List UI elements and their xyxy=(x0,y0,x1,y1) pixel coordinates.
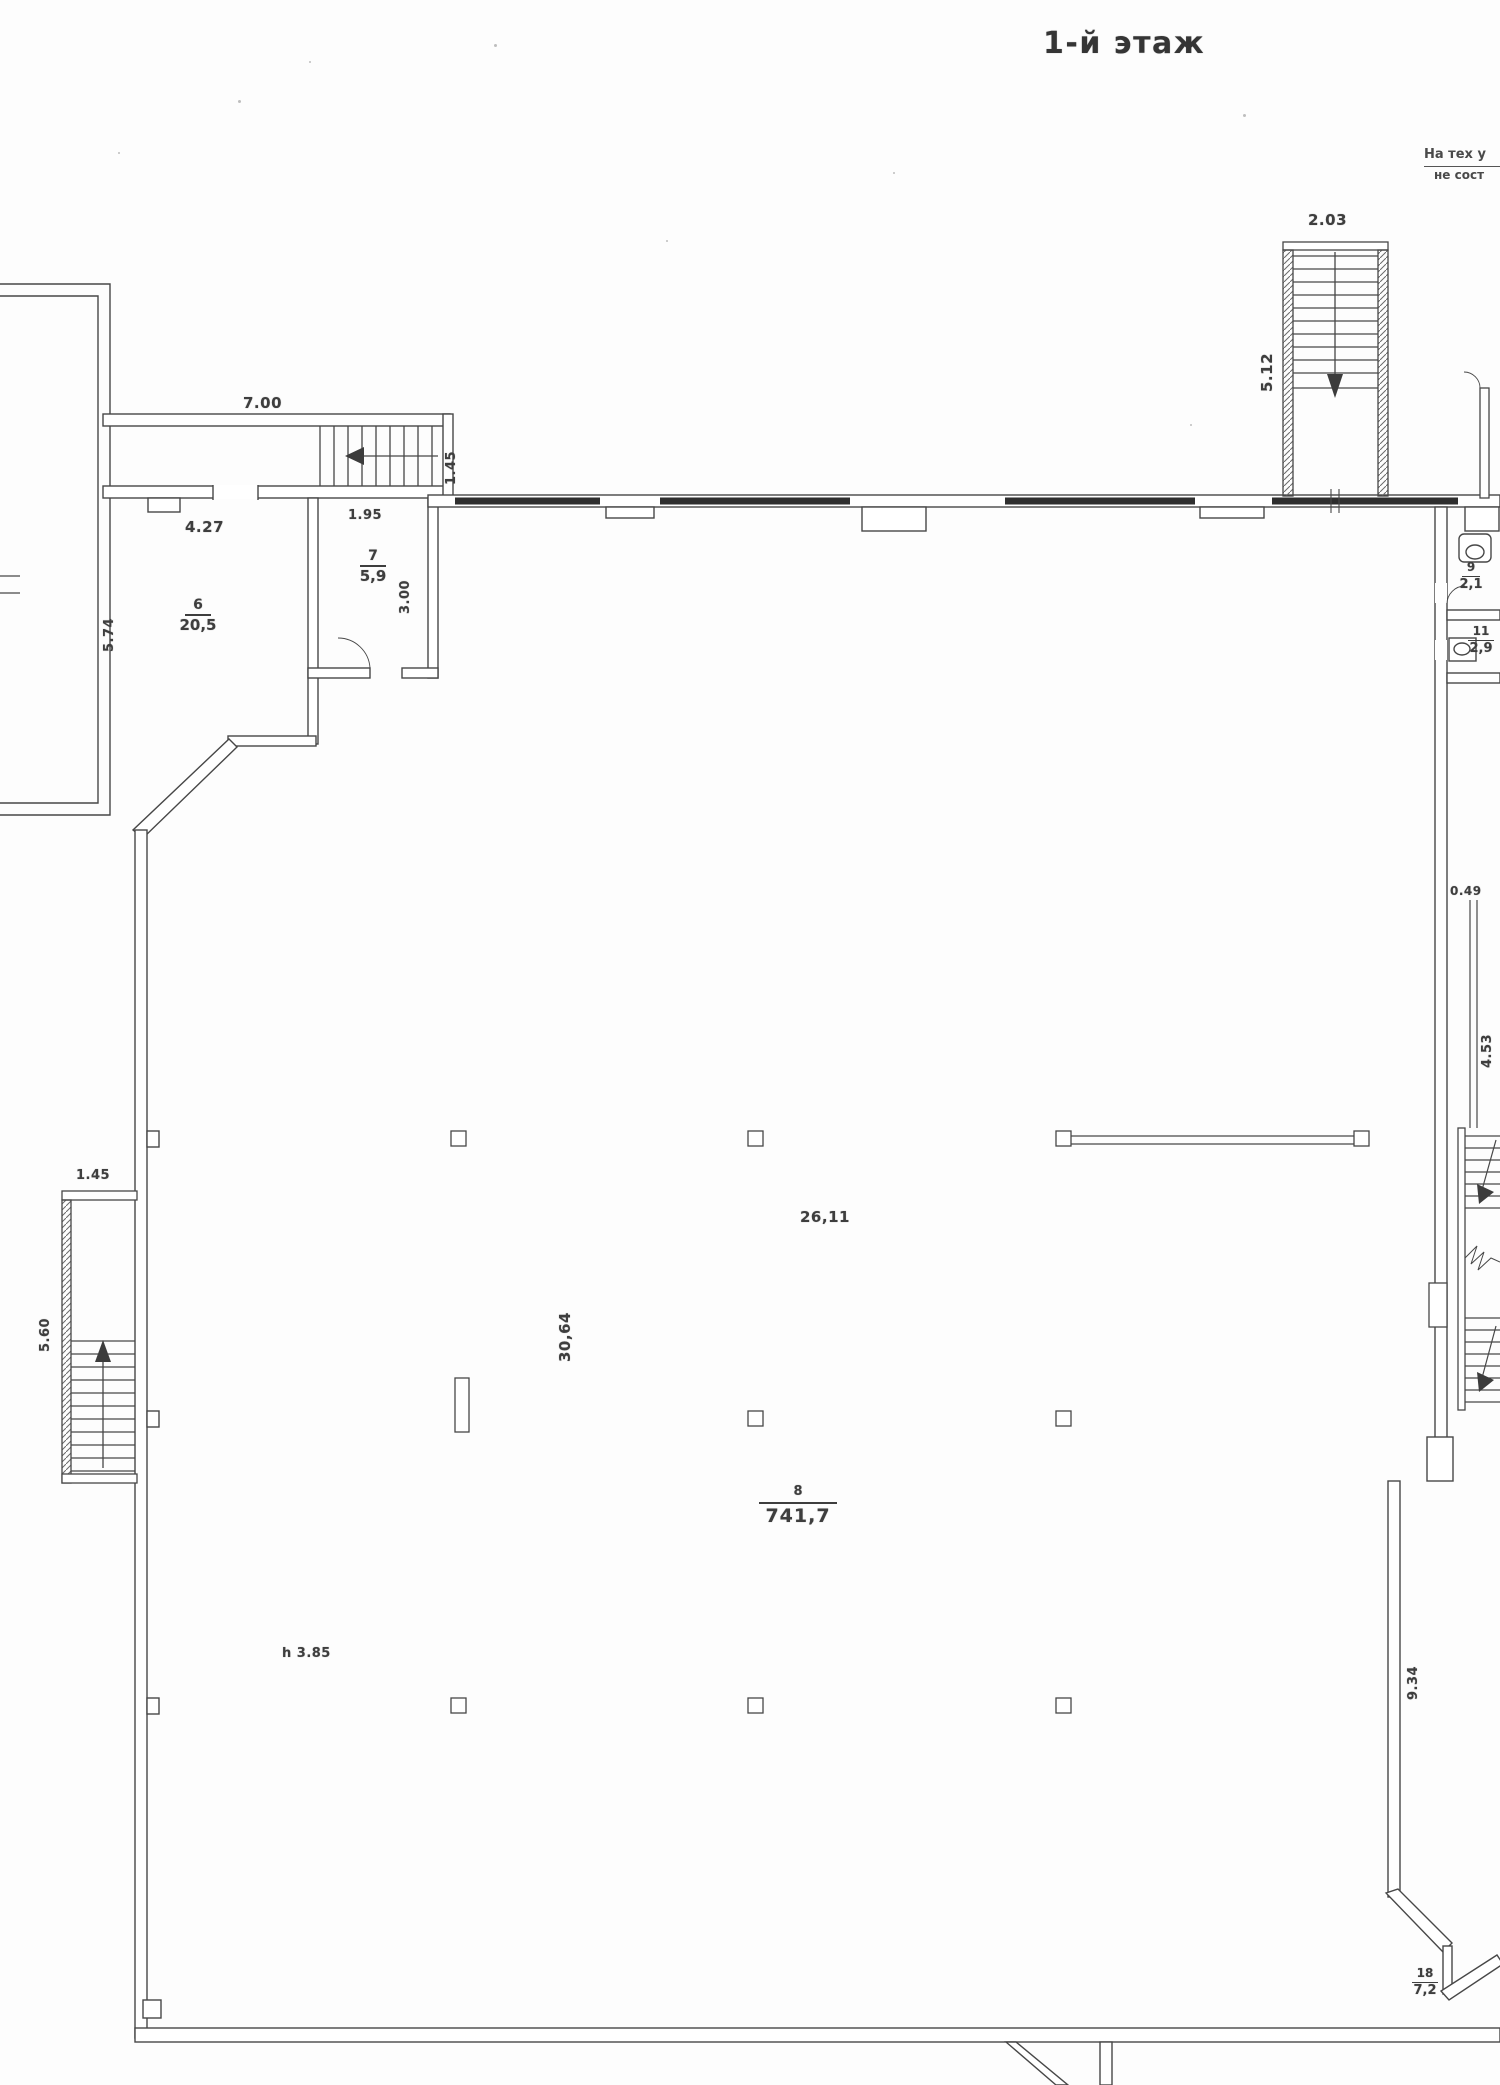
door-arc xyxy=(1464,372,1480,388)
registration-note: На тех у не сост xyxy=(1424,146,1500,184)
room6-area: 20,5 xyxy=(166,616,230,636)
dim-hall-width: 26,11 xyxy=(800,1208,850,1226)
wall-pilaster xyxy=(147,1131,159,1147)
scan-speck xyxy=(118,152,120,154)
note-line-2: не сост xyxy=(1424,167,1500,184)
scan-speck xyxy=(1243,114,1246,117)
corner-column xyxy=(143,2000,161,2018)
wall-pier xyxy=(862,507,926,531)
dim-left-stair-width: 1.45 xyxy=(76,1168,110,1183)
room11-number: 11 xyxy=(1468,625,1495,641)
dim-right-corridor: 4.53 xyxy=(1480,1034,1495,1068)
room18-area: 7,2 xyxy=(1396,1983,1454,2000)
stair-direction-arrow xyxy=(1327,374,1343,398)
right-edge-wall-stub xyxy=(1464,372,1489,498)
vestibule-walls xyxy=(103,414,453,512)
dim-hall-depth: 30,64 xyxy=(556,1312,574,1362)
floor-plan-scan: 1-й этаж На тех у не сост 2.03 5.12 7.00… xyxy=(0,0,1500,2085)
stair-arrow xyxy=(1477,1372,1494,1392)
window-band xyxy=(1272,498,1458,505)
dim-entry-wall: 7.00 xyxy=(243,394,282,412)
scan-speck xyxy=(494,44,497,47)
hall-columns xyxy=(451,1131,1369,1713)
wall-pilaster xyxy=(147,1411,159,1427)
room18-number: 18 xyxy=(1412,1967,1439,1983)
duct-shaft xyxy=(1429,1283,1447,1327)
room7-tag: 7 5,9 xyxy=(345,545,401,587)
hall-north-wall xyxy=(428,489,1500,531)
upper-left-stair xyxy=(320,426,438,486)
column-block xyxy=(1427,1437,1453,1481)
left-building-block xyxy=(0,284,110,815)
room7-area: 5,9 xyxy=(345,567,401,587)
scan-speck xyxy=(309,61,311,63)
note-line-1: На тех у xyxy=(1424,146,1500,167)
window-band xyxy=(660,498,850,505)
left-stair xyxy=(62,1191,137,1483)
stair-arrow xyxy=(1477,1184,1494,1204)
room7-door-arc xyxy=(338,638,370,668)
scan-speck xyxy=(238,100,241,103)
room7-number: 7 xyxy=(360,548,386,567)
beam-over-opening xyxy=(1071,1136,1354,1144)
dim-room7-width: 1.95 xyxy=(348,508,382,523)
scan-speck xyxy=(1190,424,1192,426)
room8-area: 741,7 xyxy=(738,1504,858,1529)
dim-room6-depth: 5.74 xyxy=(102,618,117,652)
window-band xyxy=(455,498,600,505)
dim-room6-width: 4.27 xyxy=(185,518,224,536)
dim-entry-stair-width: 1.45 xyxy=(444,451,459,485)
room11-tag: 11 2,9 xyxy=(1460,620,1500,658)
lower-right-walls xyxy=(1386,1437,1500,2000)
room8-tag: 8 741,7 xyxy=(738,1480,858,1529)
room9-number: 9 xyxy=(1462,561,1480,577)
room9-area: 2,1 xyxy=(1450,577,1492,594)
slot-column xyxy=(455,1378,469,1432)
dim-right-room-depth: 9.34 xyxy=(1406,1666,1421,1700)
dim-niche: 0.49 xyxy=(1450,884,1482,898)
room6-number: 6 xyxy=(185,597,211,616)
page-title: 1-й этаж xyxy=(1043,26,1205,61)
ceiling-height-label: h 3.85 xyxy=(282,1646,331,1661)
stair-direction-arrow xyxy=(95,1340,111,1362)
room8-number: 8 xyxy=(759,1485,836,1504)
window-band xyxy=(1005,498,1195,505)
scan-speck xyxy=(893,172,895,174)
hall-envelope xyxy=(135,830,1500,2085)
room6-tag: 6 20,5 xyxy=(166,594,230,636)
room11-area: 2,9 xyxy=(1460,641,1500,658)
room9-tag: 9 2,1 xyxy=(1450,556,1492,594)
dim-top-stair-width: 2.03 xyxy=(1308,211,1347,229)
dim-top-stair-length: 5.12 xyxy=(1258,353,1276,392)
wall-pilaster xyxy=(147,1698,159,1714)
room18-tag: 18 7,2 xyxy=(1396,1962,1454,2000)
floorplan-drawing xyxy=(0,0,1500,2085)
scan-speck xyxy=(666,240,668,242)
wall-pier xyxy=(606,507,654,518)
wall-pier xyxy=(1200,507,1264,518)
wall-pier xyxy=(1465,507,1499,531)
top-stair xyxy=(1283,242,1388,496)
dim-left-stair-length: 5.60 xyxy=(38,1318,53,1352)
